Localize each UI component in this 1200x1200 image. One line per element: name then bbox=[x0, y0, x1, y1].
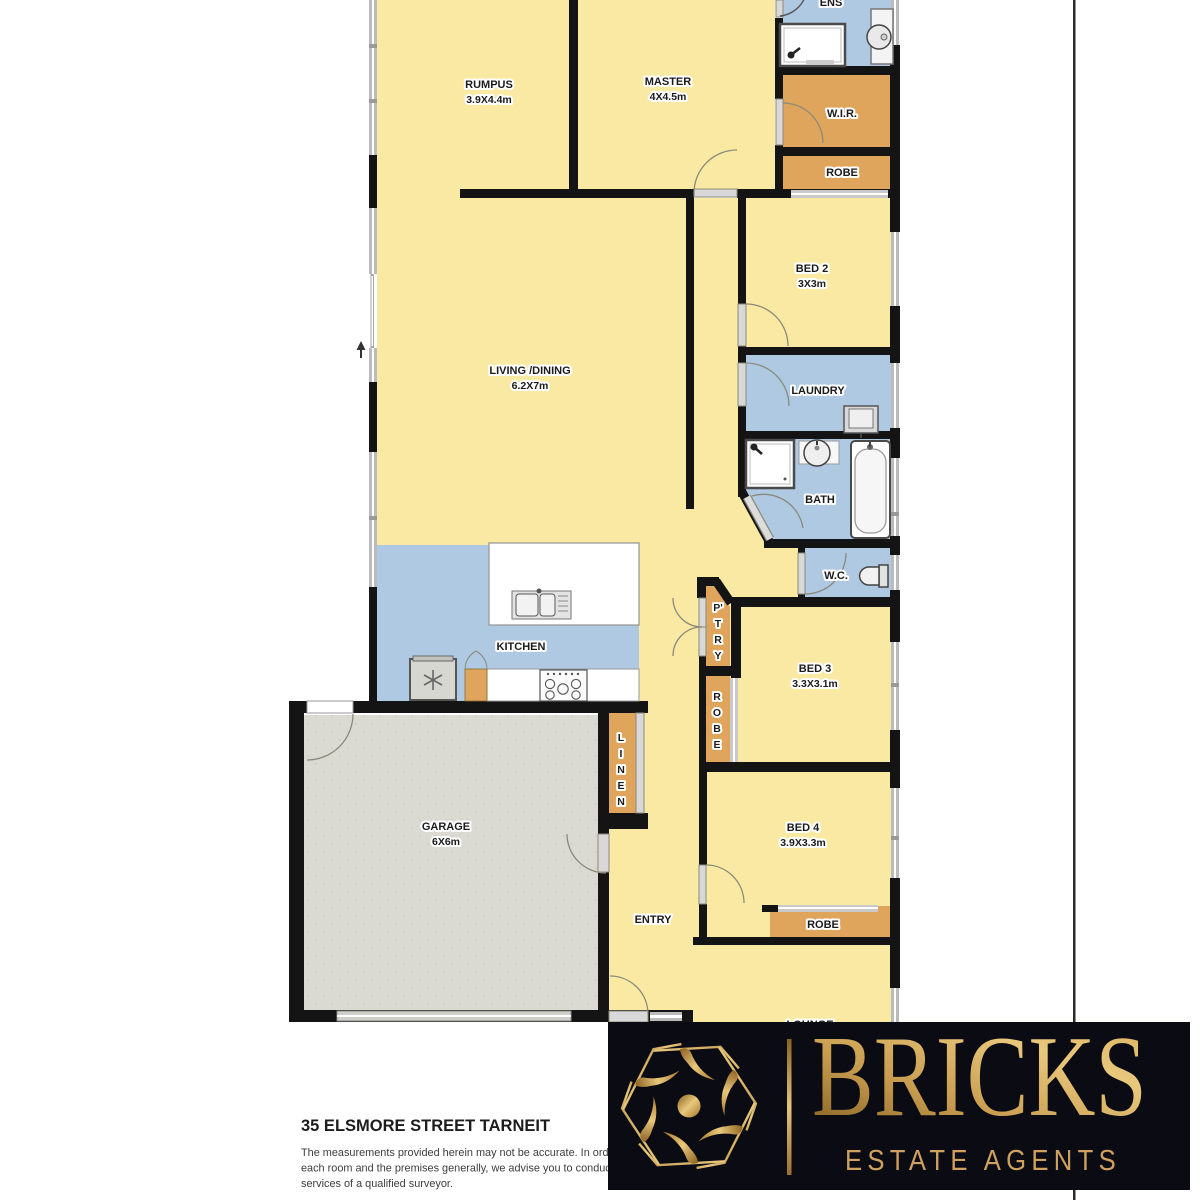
svg-text:35 ELSMORE STREET TARNEIT: 35 ELSMORE STREET TARNEIT bbox=[301, 1117, 550, 1135]
svg-text:GARAGE: GARAGE bbox=[422, 821, 470, 833]
svg-text:T: T bbox=[715, 618, 722, 630]
svg-text:BRICKS: BRICKS bbox=[812, 1013, 1147, 1141]
svg-text:I: I bbox=[620, 748, 623, 760]
svg-text:W.C.: W.C. bbox=[824, 570, 848, 582]
svg-text:N: N bbox=[617, 764, 625, 776]
svg-text:BED 3: BED 3 bbox=[799, 663, 831, 675]
svg-text:BED 4: BED 4 bbox=[787, 822, 820, 834]
svg-text:ENTRY: ENTRY bbox=[635, 914, 673, 926]
svg-text:ROBE: ROBE bbox=[826, 167, 858, 179]
svg-text:6.2X7m: 6.2X7m bbox=[512, 380, 549, 392]
svg-text:L: L bbox=[618, 732, 625, 744]
svg-text:ROBE: ROBE bbox=[807, 919, 839, 931]
svg-text:BATH: BATH bbox=[805, 494, 835, 506]
svg-text:BED 2: BED 2 bbox=[796, 263, 828, 275]
svg-text:R: R bbox=[713, 691, 721, 703]
svg-text:Y: Y bbox=[714, 650, 721, 662]
svg-text:P': P' bbox=[713, 602, 723, 614]
svg-text:W.I.R.: W.I.R. bbox=[827, 108, 857, 120]
svg-text:services of a qualified survey: services of a qualified surveyor. bbox=[301, 1178, 453, 1190]
svg-text:6X6m: 6X6m bbox=[432, 836, 460, 848]
svg-text:N: N bbox=[617, 796, 625, 808]
svg-text:R: R bbox=[714, 634, 722, 646]
svg-text:KITCHEN: KITCHEN bbox=[497, 641, 546, 653]
svg-text:MASTER: MASTER bbox=[645, 76, 692, 88]
svg-text:ENS: ENS bbox=[820, 0, 843, 9]
svg-text:E: E bbox=[713, 739, 720, 751]
svg-text:LIVING /DINING: LIVING /DINING bbox=[489, 365, 570, 377]
svg-text:O: O bbox=[713, 707, 721, 719]
svg-text:LAUNDRY: LAUNDRY bbox=[791, 385, 845, 397]
svg-text:3.3X3.1m: 3.3X3.1m bbox=[792, 678, 838, 690]
svg-text:RUMPUS: RUMPUS bbox=[465, 79, 513, 91]
svg-text:B: B bbox=[713, 723, 721, 735]
svg-text:3.9X4.4m: 3.9X4.4m bbox=[466, 94, 512, 106]
svg-text:4X4.5m: 4X4.5m bbox=[650, 91, 687, 103]
svg-text:ESTATE AGENTS: ESTATE AGENTS bbox=[845, 1145, 1121, 1177]
svg-text:3.9X3.3m: 3.9X3.3m bbox=[780, 837, 826, 849]
svg-text:E: E bbox=[617, 780, 624, 792]
svg-text:3X3m: 3X3m bbox=[798, 278, 826, 290]
